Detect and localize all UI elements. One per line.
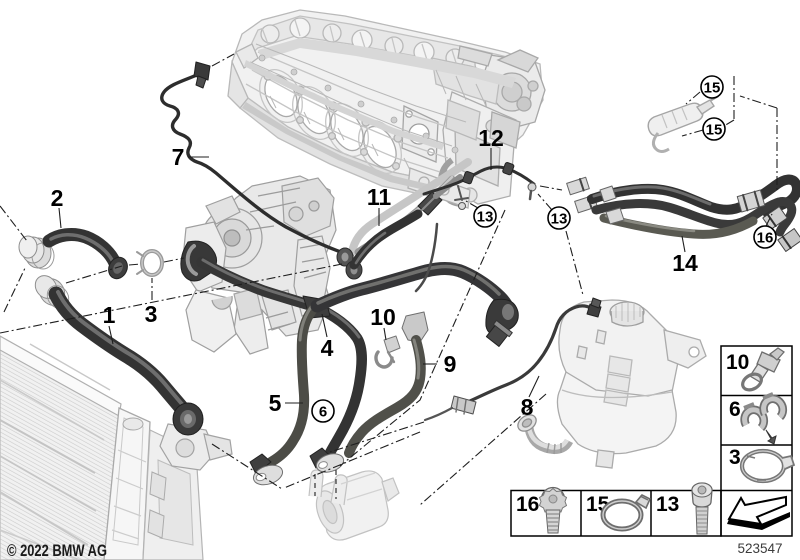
svg-text:15: 15 <box>704 80 721 97</box>
svg-text:6: 6 <box>319 404 327 421</box>
svg-text:13: 13 <box>656 493 679 516</box>
svg-text:14: 14 <box>672 250 698 276</box>
svg-text:12: 12 <box>478 125 504 151</box>
svg-text:3: 3 <box>145 301 158 327</box>
svg-text:15: 15 <box>706 122 723 139</box>
svg-text:5: 5 <box>269 390 282 416</box>
svg-text:6: 6 <box>729 398 741 421</box>
svg-text:523547: 523547 <box>737 541 782 556</box>
svg-text:13: 13 <box>477 209 494 226</box>
svg-text:7: 7 <box>172 144 185 170</box>
svg-text:10: 10 <box>726 351 749 374</box>
svg-text:1: 1 <box>103 302 116 328</box>
svg-text:4: 4 <box>321 335 334 361</box>
svg-text:16: 16 <box>757 230 774 247</box>
svg-text:13: 13 <box>551 211 568 228</box>
svg-text:© 2022 BMW AG: © 2022 BMW AG <box>7 541 107 560</box>
svg-text:8: 8 <box>521 394 534 420</box>
svg-text:11: 11 <box>367 184 392 210</box>
svg-text:10: 10 <box>370 304 396 330</box>
svg-text:9: 9 <box>444 351 457 377</box>
svg-text:3: 3 <box>729 446 741 469</box>
svg-text:2: 2 <box>51 185 64 211</box>
svg-text:16: 16 <box>516 493 539 516</box>
